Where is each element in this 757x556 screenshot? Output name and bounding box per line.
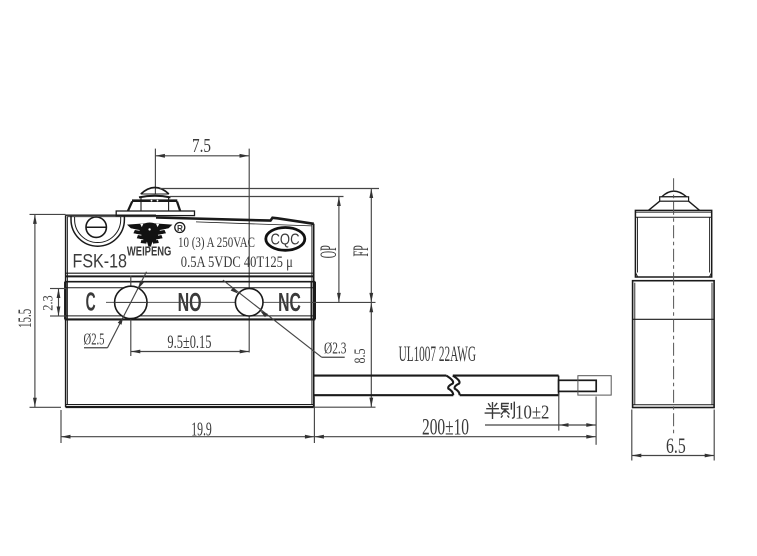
svg-text:2.3: 2.3 (41, 295, 57, 310)
svg-text:9.5±0.15: 9.5±0.15 (167, 332, 211, 353)
svg-text:0.5A 5VDC 40T125 μ: 0.5A 5VDC 40T125 μ (181, 254, 293, 271)
svg-text:7.5: 7.5 (192, 136, 211, 157)
svg-text:C: C (86, 289, 96, 317)
svg-text:NO: NO (178, 287, 202, 317)
svg-text:R: R (177, 224, 183, 233)
svg-text:UL1007 22AWG: UL1007 22AWG (399, 341, 476, 366)
svg-text:6.5: 6.5 (666, 433, 686, 458)
svg-text:OP: OP (316, 245, 341, 258)
svg-text:15.5: 15.5 (15, 309, 36, 328)
svg-text:Ø2.3: Ø2.3 (324, 339, 346, 358)
svg-text:10±2: 10±2 (515, 402, 549, 424)
svg-text:Ø2.5: Ø2.5 (84, 330, 105, 349)
svg-text:200±10: 200±10 (422, 415, 469, 440)
svg-text:WEIPENG: WEIPENG (127, 245, 171, 259)
svg-text:8.5: 8.5 (352, 348, 369, 363)
svg-text:FP: FP (348, 245, 373, 256)
svg-text:CQC: CQC (271, 232, 300, 249)
svg-text:19.9: 19.9 (191, 420, 212, 441)
svg-text:10 (3) A 250VAC: 10 (3) A 250VAC (178, 235, 255, 251)
svg-text:FSK-18: FSK-18 (73, 251, 128, 273)
svg-text:NC: NC (278, 287, 301, 317)
